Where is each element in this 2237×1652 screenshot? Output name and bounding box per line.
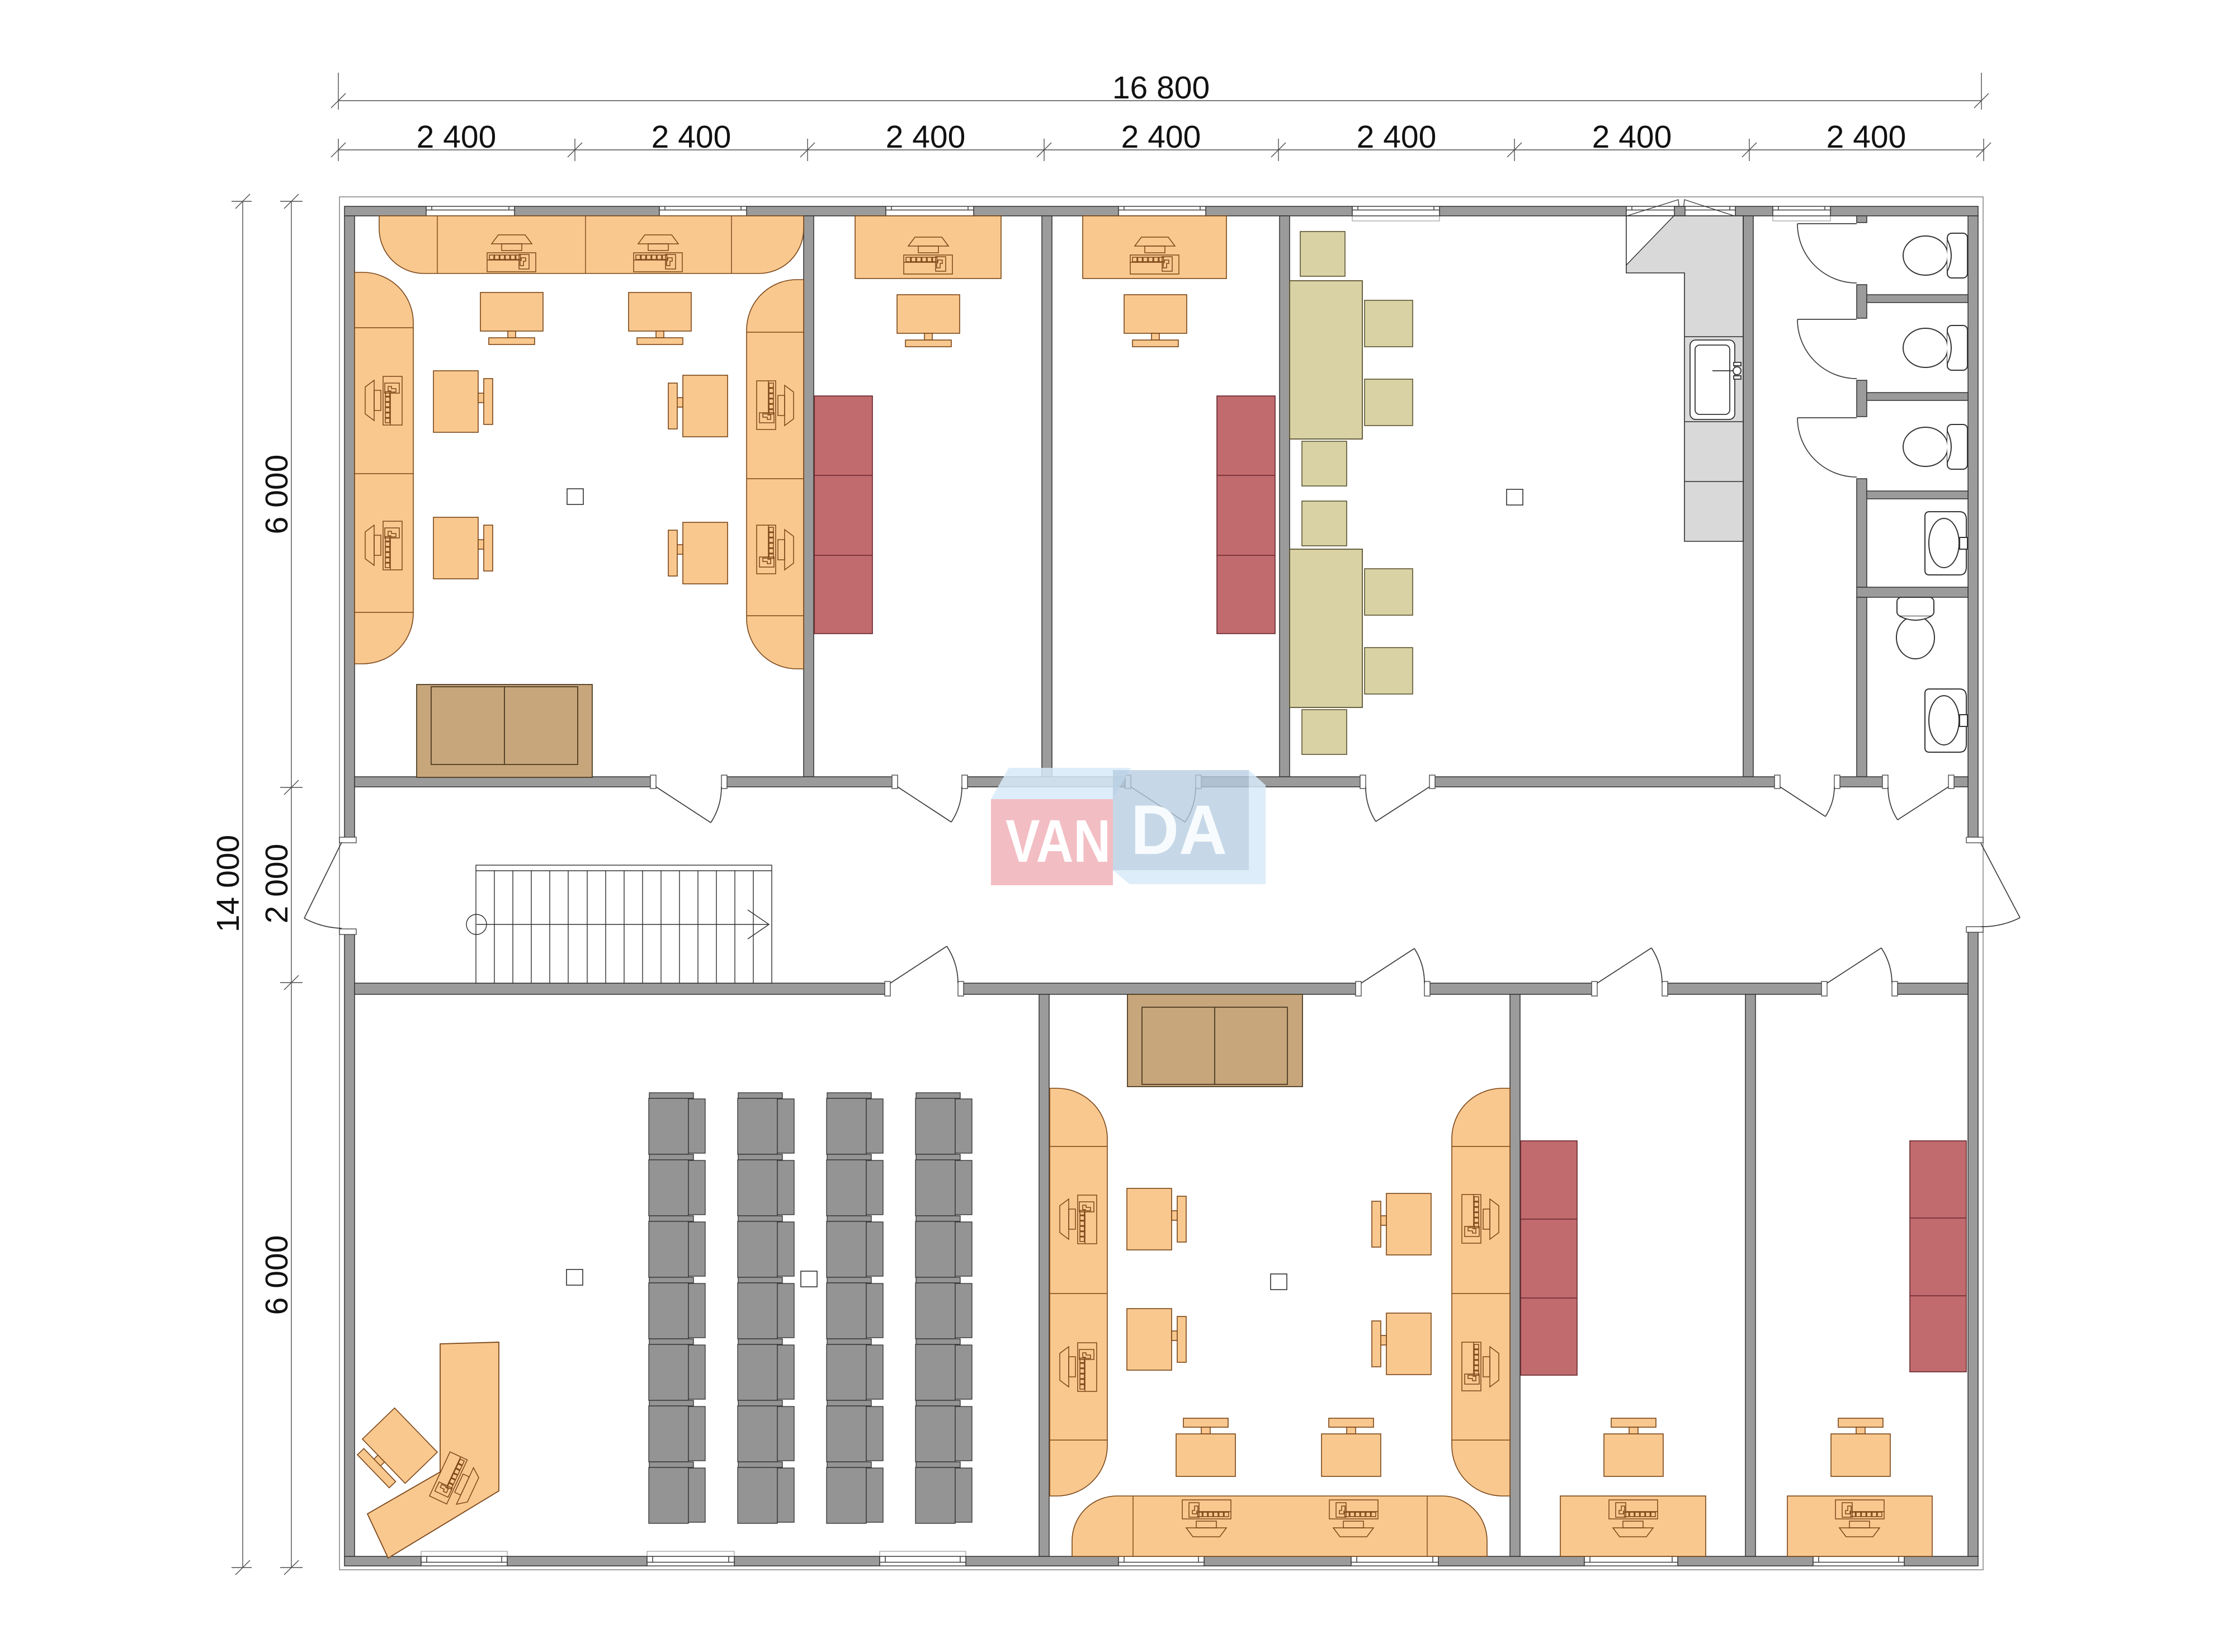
svg-text:DA: DA <box>1131 791 1227 869</box>
svg-text:2 400: 2 400 <box>1357 119 1437 155</box>
svg-text:2 400: 2 400 <box>1121 119 1201 155</box>
svg-text:2 400: 2 400 <box>1827 119 1906 155</box>
svg-text:2 400: 2 400 <box>417 119 497 155</box>
svg-text:6 000: 6 000 <box>259 1235 295 1315</box>
svg-text:2 400: 2 400 <box>652 119 731 155</box>
svg-text:VAN: VAN <box>1006 807 1111 875</box>
svg-text:2 400: 2 400 <box>886 119 966 155</box>
svg-text:2 000: 2 000 <box>259 844 295 924</box>
svg-text:16 800: 16 800 <box>1112 70 1210 106</box>
svg-text:14 000: 14 000 <box>210 835 246 932</box>
svg-text:2 400: 2 400 <box>1592 119 1672 155</box>
svg-text:6 000: 6 000 <box>259 455 295 535</box>
